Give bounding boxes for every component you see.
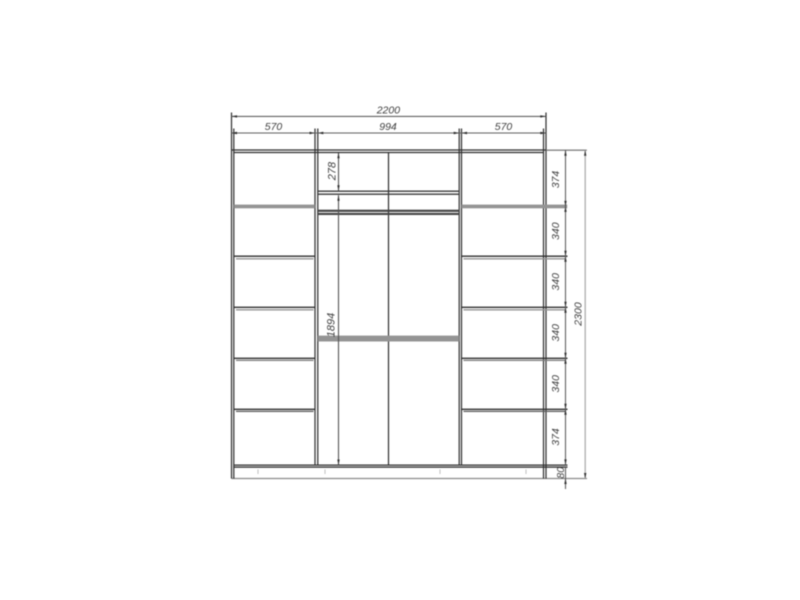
svg-text:994: 994 xyxy=(379,121,397,133)
svg-text:340: 340 xyxy=(550,324,562,342)
svg-text:1894: 1894 xyxy=(325,313,337,337)
svg-text:340: 340 xyxy=(550,375,562,393)
svg-text:340: 340 xyxy=(550,273,562,291)
svg-text:2200: 2200 xyxy=(376,104,401,116)
svg-text:278: 278 xyxy=(327,161,339,181)
svg-text:2300: 2300 xyxy=(572,302,584,327)
svg-text:80: 80 xyxy=(555,467,567,479)
svg-text:374: 374 xyxy=(550,171,562,189)
svg-text:570: 570 xyxy=(265,121,283,133)
svg-text:374: 374 xyxy=(550,428,562,446)
svg-text:340: 340 xyxy=(550,222,562,240)
svg-text:570: 570 xyxy=(495,121,513,133)
